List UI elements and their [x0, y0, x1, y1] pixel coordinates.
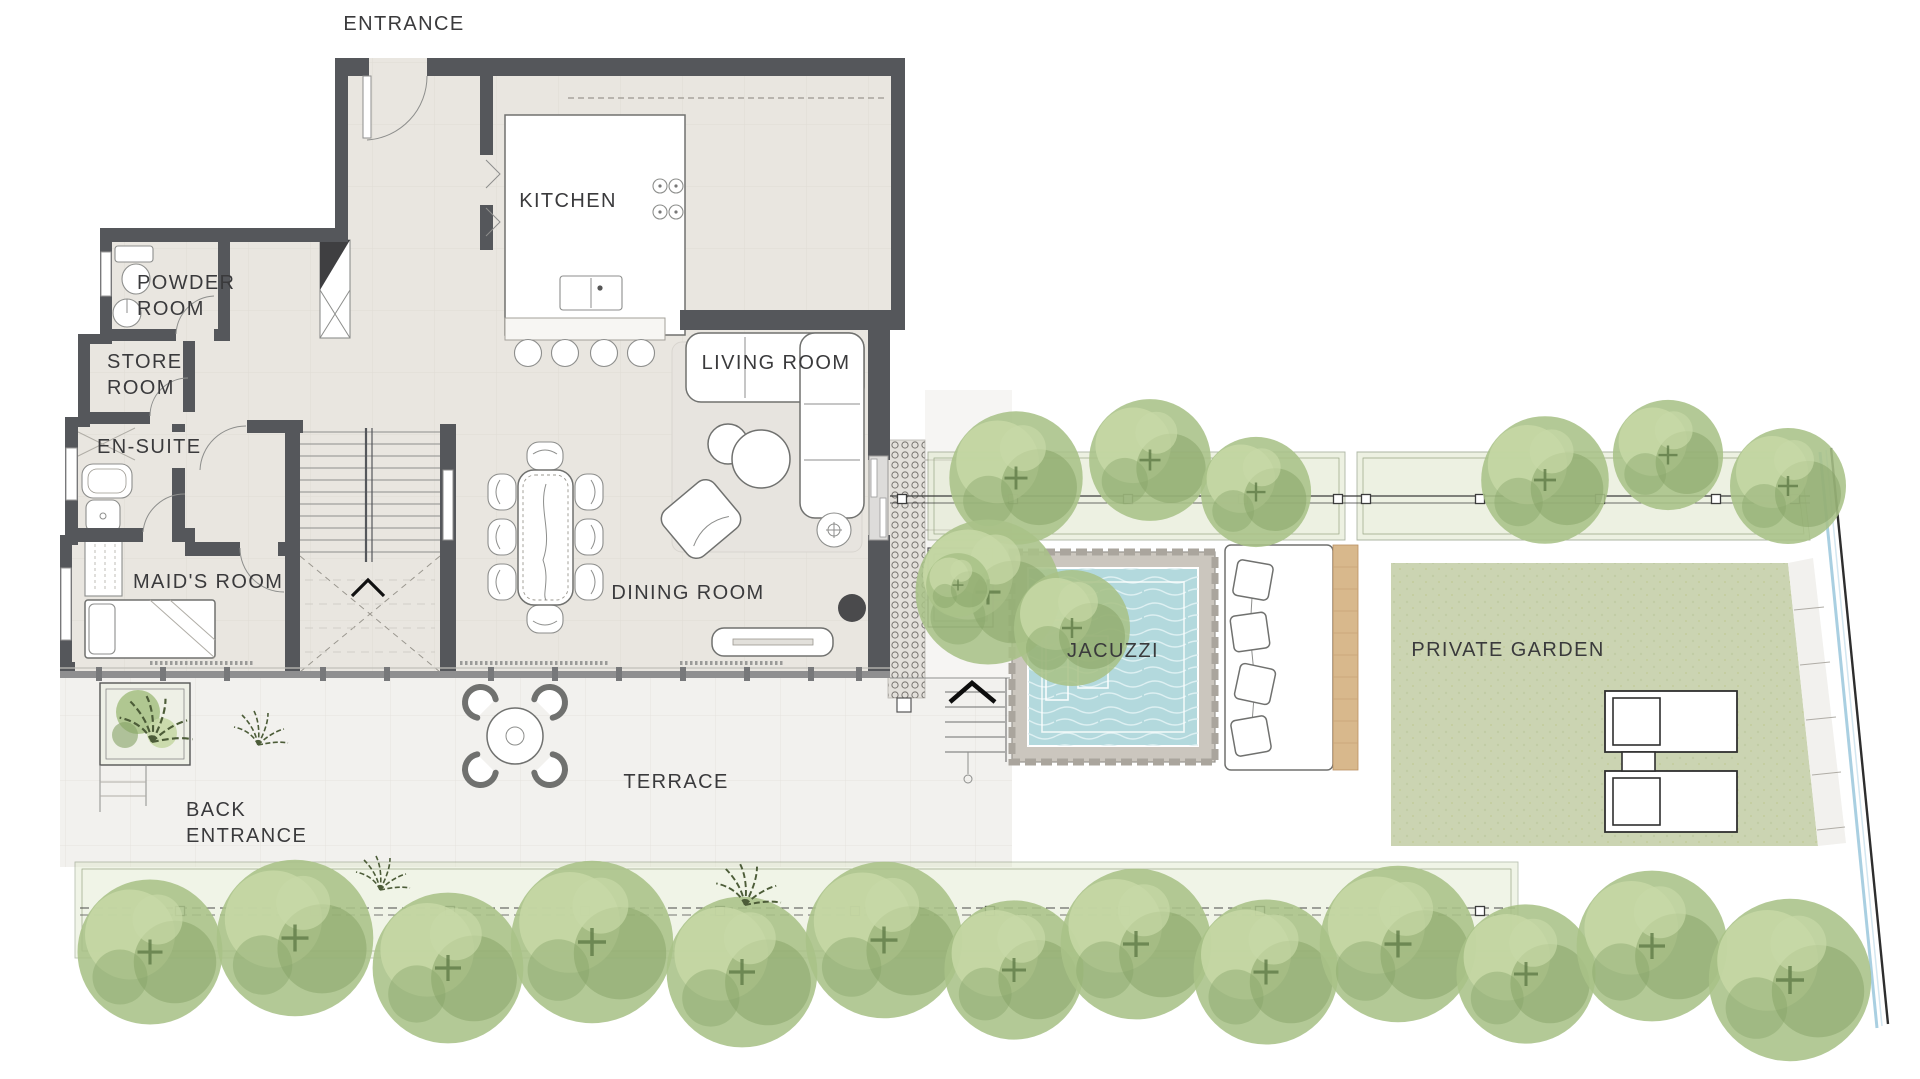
label-entrance: ENTRANCE	[343, 11, 464, 37]
side-table	[838, 594, 866, 622]
floor-lamp	[817, 513, 851, 547]
pocket-door	[443, 470, 453, 540]
label-back-entrance: BACK ENTRANCE	[186, 797, 307, 850]
label-powder-room: POWDER ROOM	[137, 270, 235, 323]
hall-closet	[320, 240, 350, 338]
daybed	[1225, 545, 1333, 770]
floor-plan: ENTRANCE KITCHEN POWDER ROOM STORE ROOM …	[0, 0, 1920, 1079]
wood-deck	[1333, 545, 1358, 770]
label-en-suite: EN-SUITE	[97, 434, 202, 460]
label-jacuzzi: JACUZZI	[1067, 638, 1159, 664]
label-living-room: LIVING ROOM	[702, 350, 851, 376]
label-dining-room: DINING ROOM	[611, 580, 764, 606]
living-glass-door	[869, 456, 888, 540]
label-terrace: TERRACE	[623, 769, 728, 795]
floor-plan-drawing	[0, 0, 1920, 1079]
label-private-garden: PRIVATE GARDEN	[1411, 637, 1604, 663]
label-kitchen: KITCHEN	[519, 188, 617, 214]
coffee-table-large	[732, 430, 790, 488]
label-store-room: STORE ROOM	[107, 349, 183, 402]
label-maids-room: MAID'S ROOM	[133, 569, 283, 595]
tv-console	[712, 628, 833, 656]
